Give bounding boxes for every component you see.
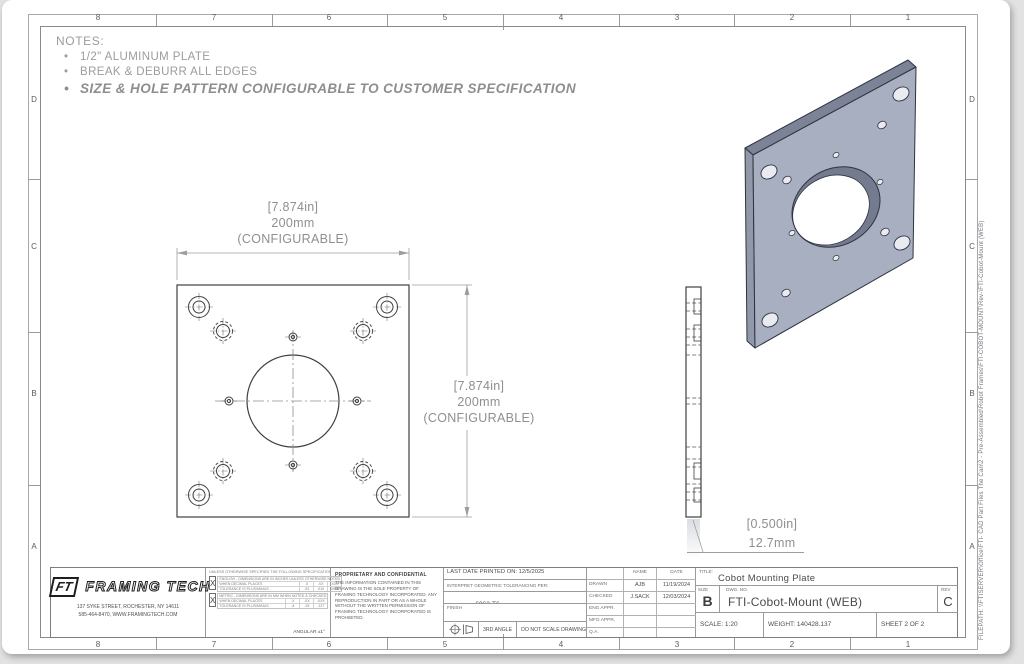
side-view (686, 287, 701, 559)
dim-height-in: [7.874in] (454, 379, 505, 393)
dim-height-note: (CONFIGURABLE) (423, 411, 534, 425)
tolerance-col: .XX (313, 582, 327, 586)
tolerance-val: .8 (285, 604, 299, 608)
proprietary-body: THE INFORMATION CONTAINED IN THIS DRAWIN… (335, 580, 439, 621)
checkbox-english: X (209, 576, 216, 590)
side-view-reflection (687, 519, 700, 559)
proprietary-heading: PROPRIETARY AND CONFIDENTIAL (335, 572, 439, 578)
tolerance-col: .XXX (313, 599, 327, 603)
dim-thickness-in: [0.500in] (747, 517, 798, 531)
third-angle-label: 3RD ANGLE (478, 622, 516, 637)
title-block: FT FRAMING TECH 137 SYKE STREET, ROCHEST… (50, 567, 958, 638)
dim-width-mm: 200mm (271, 216, 314, 230)
rev-value: C (938, 594, 958, 609)
rev-cell: REV C (937, 586, 958, 612)
approvals-table: NAME DATE DRAWN AJB 11/19/2024 CHECKED J… (587, 568, 696, 637)
company-cell: FT FRAMING TECH 137 SYKE STREET, ROCHEST… (51, 568, 206, 637)
tolerance-col: .XX (299, 599, 313, 603)
filepath-text: FILEPATH: \\FTISERVER\Office\FTI- CAD Pa… (979, 74, 985, 640)
tolerance-col: .X (299, 582, 313, 586)
title-label: TITLE: (699, 569, 713, 574)
tolerance-line: TOLERANCE IS PLUS/MINUS (218, 587, 299, 591)
approvals-date-header: DATE (656, 568, 696, 579)
size-cell: SIZE B (696, 586, 720, 612)
tolerance-cell: UNLESS OTHERWISE SPECIFIED THE FOLLOWING… (206, 568, 331, 637)
tolerance-line: WHEN DECIMAL PLACES (218, 599, 285, 603)
weight-value: WEIGHT: 140428.137 (764, 613, 877, 637)
dim-width-note: (CONFIGURABLE) (237, 232, 348, 246)
tolerance-row-metric: X METRIC - DIMENSIONS ARE IN MM WHEN NOT… (209, 593, 327, 609)
dwg-number: FTI-Cobot-Mount (WEB) (728, 595, 862, 609)
do-not-scale-label: DO NOT SCALE DRAWING (516, 622, 587, 637)
dimension-height: [7.874in] 200mm (CONFIGURABLE) (412, 285, 535, 517)
tolerance-line: WHEN DECIMAL PLACES (218, 582, 299, 586)
dimension-width: [7.874in] 200mm (CONFIGURABLE) (177, 200, 409, 280)
centerlines (215, 330, 371, 472)
drawing-title: Cobot Mounting Plate (718, 573, 815, 584)
size-value: B (696, 593, 719, 609)
tolerance-val: .010 (313, 587, 327, 591)
material-column: LAST DATE PRINTED ON: 12/5/2025 INTERPRE… (444, 568, 587, 637)
logo-name: FRAMING TECH (85, 578, 210, 594)
tolerance-col: .X (285, 599, 299, 603)
company-contact: 585-464-8470, WWW.FRAMINGTECH.COM (51, 612, 205, 620)
dim-height-mm: 200mm (457, 395, 500, 409)
tolerance-row-english: X ENGLISH - DIMENSIONS ARE IN INCHES UNL… (209, 576, 327, 592)
tolerance-header: UNLESS OTHERWISE SPECIFIED THE FOLLOWING… (206, 568, 330, 575)
sheet-number: SHEET 2 OF 2 (877, 613, 958, 637)
projection-symbol-icon (444, 622, 478, 637)
approval-row-mfg: MFG APPR. (587, 615, 696, 627)
dwg-cell: DWG. NO. FTI-Cobot-Mount (WEB) (720, 586, 937, 612)
tolerance-val: .127 (313, 604, 327, 608)
interpret-note: INTERPRET GEOMETRIC TOLERANCING PER: (444, 580, 587, 592)
cad-views: [7.874in] 200mm (CONFIGURABLE) [7.874in]… (0, 0, 1024, 664)
approvals-name-header: NAME (623, 568, 656, 579)
angular-tolerance: ANGULAR ±1° (206, 630, 330, 637)
tolerance-val: .25 (299, 604, 313, 608)
scale-value: SCALE: 1:20 (696, 613, 764, 637)
approval-row-qa: Q.A. (587, 627, 696, 637)
last-printed: LAST DATE PRINTED ON: 12/5/2025 (444, 568, 587, 580)
company-logo: FT FRAMING TECH (51, 577, 205, 597)
dimension-thickness: [0.500in] 12.7mm (687, 517, 804, 553)
isometric-view (745, 60, 916, 348)
approval-row-checked: CHECKED J.SACK 12/03/2024 (587, 591, 696, 603)
dim-width-in: [7.874in] (268, 200, 319, 214)
approval-row-drawn: DRAWN AJB 11/19/2024 (587, 579, 696, 591)
finish-label: FINISH (444, 604, 587, 622)
tolerance-line: TOLERANCE IS PLUS/MINUS (218, 604, 285, 608)
dim-thickness-mm: 12.7mm (749, 536, 796, 550)
proprietary-cell: PROPRIETARY AND CONFIDENTIAL THE INFORMA… (331, 568, 444, 637)
title-area: TITLE: Cobot Mounting Plate SIZE B DWG. … (696, 568, 958, 637)
logo-ft-icon: FT (49, 577, 79, 597)
tolerance-val: .03 (299, 587, 313, 591)
checkbox-metric: X (209, 593, 216, 607)
approval-row-eng: ENG APPR. (587, 603, 696, 615)
drawing-sheet: 8 7 6 5 4 3 2 1 8 7 6 5 4 3 2 1 D C B A … (0, 0, 1024, 664)
company-address: 137 SYKE STREET, ROCHESTER, NY 14611 (51, 604, 205, 612)
front-view (177, 285, 409, 517)
